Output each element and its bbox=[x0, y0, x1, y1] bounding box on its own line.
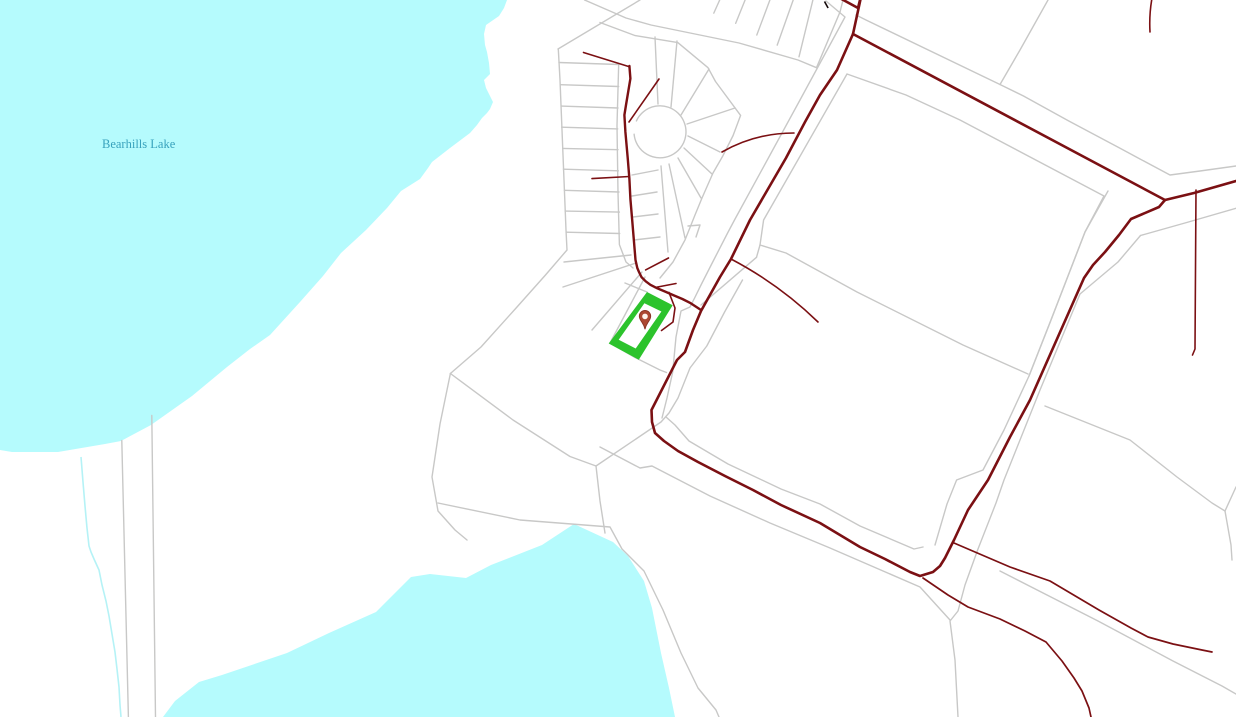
svg-text:Bearhills Lake: Bearhills Lake bbox=[102, 137, 176, 151]
